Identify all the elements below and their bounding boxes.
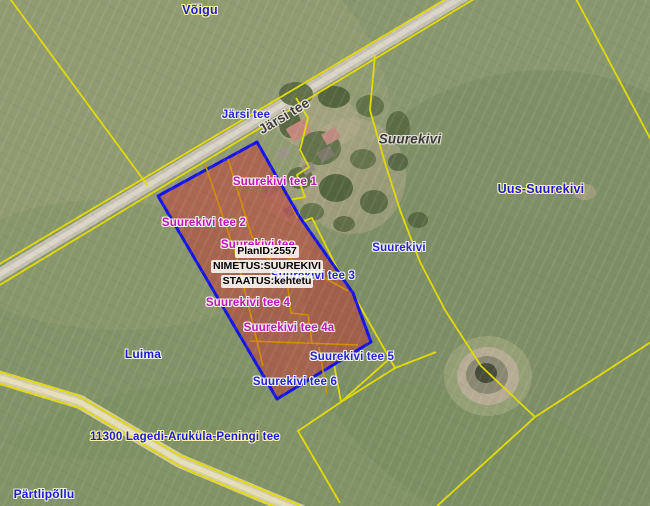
map-viewport[interactable]: VõiguJärsi teeJärsi teeSuurekiviUus-Suur… bbox=[0, 0, 650, 506]
map-graphics bbox=[0, 0, 650, 506]
stone-mound bbox=[457, 347, 519, 405]
